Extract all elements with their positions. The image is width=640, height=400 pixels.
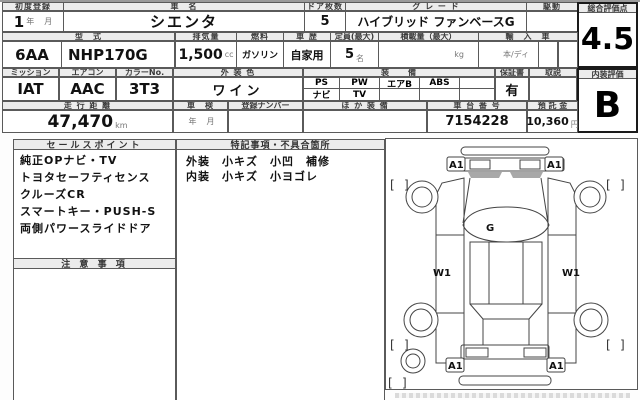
taillight-right xyxy=(524,348,546,357)
front-bumper xyxy=(461,147,549,155)
front-light-left-mark: A1 xyxy=(449,160,464,171)
model-header: 型 式 xyxy=(2,32,175,41)
car-name-cell: シエンタ xyxy=(63,11,305,32)
bracket: [ xyxy=(606,178,611,192)
cowl-left xyxy=(468,172,502,178)
first-reg-month-unit: 月 xyxy=(44,16,52,27)
grade-cell: ハイブリッド ファンベースG xyxy=(345,11,527,32)
reg-number-cell xyxy=(228,110,303,133)
other-equip-header: ほ か 装 備 xyxy=(303,101,427,110)
wheel-front-left xyxy=(406,181,438,213)
displacement-value: 1,500 xyxy=(178,47,222,63)
aircon-header: エアコン xyxy=(59,68,116,77)
manual-cell xyxy=(529,77,577,101)
capacity-header: 定員(最大) xyxy=(330,32,379,41)
first-reg-value: 1 xyxy=(14,13,24,31)
shaken-cell: 年 月 xyxy=(173,110,228,133)
grade-value: ハイブリッド ファンベースG xyxy=(357,13,514,30)
warranty-value: 有 xyxy=(505,80,518,99)
doors-header: ドア枚数 xyxy=(304,2,346,11)
bracket: ] xyxy=(404,338,409,352)
bracket: ] xyxy=(620,338,625,352)
doors-cell: 5 xyxy=(304,11,346,32)
fuel-value: ガソリン xyxy=(242,48,278,61)
caution-header: 注 意 事 項 xyxy=(13,258,176,269)
sales-point-item: クルーズCR xyxy=(14,186,174,203)
headlight-right xyxy=(520,160,540,169)
door-left-mark: W1 xyxy=(433,268,451,279)
history-cell: 自家用 xyxy=(283,41,331,68)
wheel-rear-left xyxy=(404,303,438,337)
equip-blank3 xyxy=(419,88,460,101)
bracket: [ xyxy=(390,178,395,192)
cowl-right xyxy=(510,172,543,178)
displacement-header: 排気量 xyxy=(175,32,237,41)
history-header: 車 歴 xyxy=(283,32,331,41)
spare-tire-rim xyxy=(406,354,420,368)
windshield xyxy=(463,207,549,242)
first-reg-cell: 1 年 月 xyxy=(2,11,64,32)
sales-point-item: 両側パワースライドドア xyxy=(14,220,174,237)
fuel-header: 燃料 xyxy=(236,32,284,41)
aircon-cell: AAC xyxy=(59,77,116,101)
reg-number-header: 登録ナンバー xyxy=(228,101,303,110)
bracket: [ xyxy=(388,376,393,389)
auction-sheet: 初度登録 車 名 ドア枚数 グ レ ー ド 駆動 1 年 月 シエンタ 5 ハイ… xyxy=(0,0,640,400)
rear-light-right-mark: A1 xyxy=(549,361,564,372)
c-pillar-left xyxy=(470,304,483,319)
color-value: ワイン xyxy=(212,80,263,99)
mileage-unit: km xyxy=(115,121,127,130)
shaken-month-unit: 月 xyxy=(207,116,215,127)
special-note-line: 内装 小キズ 小ヨゴレ xyxy=(178,169,382,184)
import-header: 輸 入 車 xyxy=(478,32,578,41)
history-value: 自家用 xyxy=(291,47,324,63)
model-code-cell: NHP170G xyxy=(61,41,175,68)
equip-tv: TV xyxy=(339,88,380,101)
deposit-value: 10,360 xyxy=(526,115,568,128)
load-header: 積載量（最大） xyxy=(378,32,479,41)
mileage-cell: 47,470 km xyxy=(2,110,173,133)
front-light-right-mark: A1 xyxy=(547,160,562,171)
colorno-cell: 3T3 xyxy=(116,77,173,101)
spare-tire xyxy=(401,349,425,373)
equip-blank2 xyxy=(379,88,420,101)
doors-value: 5 xyxy=(320,14,329,29)
equip-navi: ナビ xyxy=(303,88,340,101)
colorno-value: 3T3 xyxy=(129,80,160,98)
shaken-year-unit: 年 xyxy=(189,116,197,127)
tailgate xyxy=(483,319,529,345)
import-subcell-2 xyxy=(558,41,578,68)
equip-blank4 xyxy=(459,88,495,101)
warranty-cell: 有 xyxy=(495,77,529,101)
overall-score-header: 総合評価点 xyxy=(579,4,636,13)
load-unit: kg xyxy=(454,50,464,59)
import-subcell-1 xyxy=(538,41,558,68)
special-note-line: 外装 小キズ 小凹 補修 xyxy=(178,154,382,169)
sales-point-item: トヨタセーフティセンス xyxy=(14,169,174,186)
other-equip-cell xyxy=(303,110,427,133)
mileage-value: 47,470 xyxy=(47,112,113,132)
import-note: 本/ディ xyxy=(503,49,529,60)
drive-cell xyxy=(526,11,578,32)
model-prefix-cell: 6AA xyxy=(2,41,62,68)
a-pillar-right xyxy=(541,178,548,223)
mission-value: IAT xyxy=(17,80,43,98)
model-code-value: NHP170G xyxy=(68,46,148,64)
interior-score-value: B xyxy=(579,79,636,131)
chassis-cell: 7154228 xyxy=(427,110,527,133)
load-cell: kg xyxy=(378,41,479,68)
sales-points-list: 純正OPナビ・TV トヨタセーフティセンス クルーズCR スマートキー・PUSH… xyxy=(14,152,174,237)
overall-score-value: 4.5 xyxy=(579,13,636,66)
deposit-header: 預 託 金 xyxy=(527,101,578,110)
taillight-left xyxy=(466,348,488,357)
interior-score-header: 内装評価 xyxy=(579,70,636,79)
mileage-header: 走 行 距 離 xyxy=(2,101,173,110)
front-fender-left xyxy=(436,178,464,235)
bracket: ] xyxy=(404,178,409,192)
first-reg-header: 初度登録 xyxy=(2,2,64,11)
capacity-cell: 5 名 xyxy=(330,41,379,68)
chassis-value: 7154228 xyxy=(445,114,508,129)
displacement-unit: cc xyxy=(225,50,234,59)
roof-panel xyxy=(470,242,542,304)
rear-bumper xyxy=(459,376,551,385)
first-reg-year-unit: 年 xyxy=(26,16,34,27)
bracket: [ xyxy=(606,338,611,352)
car-name-value: シエンタ xyxy=(150,11,218,32)
chassis-header: 車 台 番 号 xyxy=(427,101,527,110)
manual-header: 取説 xyxy=(529,68,577,77)
aircon-value: AAC xyxy=(70,80,104,98)
sales-points-header: セールスポイント xyxy=(13,139,176,150)
model-prefix-value: 6AA xyxy=(15,46,49,64)
capacity-unit: 名 xyxy=(356,53,364,64)
legend-blur-strip xyxy=(395,393,630,398)
fuel-cell: ガソリン xyxy=(236,41,284,68)
shaken-header: 車 検 xyxy=(173,101,228,110)
sales-point-item: 純正OPナビ・TV xyxy=(14,152,174,169)
bracket: [ xyxy=(390,338,395,352)
drive-header: 駆動 xyxy=(526,2,578,11)
rear-light-left-mark: A1 xyxy=(448,361,463,372)
mission-cell: IAT xyxy=(2,77,59,101)
bracket: ] xyxy=(402,376,407,389)
colorno-header: カラーNo. xyxy=(116,68,173,77)
special-notes-header: 特記事項・不具合箇所 xyxy=(176,139,385,150)
color-cell: ワイン xyxy=(173,77,303,101)
mission-header: ミッション xyxy=(2,68,59,77)
front-fender-right xyxy=(548,178,576,235)
capacity-value: 5 xyxy=(345,47,354,62)
door-right-mark: W1 xyxy=(562,268,580,279)
grade-header: グ レ ー ド xyxy=(345,2,527,11)
special-notes-lines: 外装 小キズ 小凹 補修 内装 小キズ 小ヨゴレ xyxy=(178,154,382,184)
quarter-panel-right xyxy=(548,313,576,363)
deposit-unit: 円 xyxy=(571,119,579,130)
car-name-header: 車 名 xyxy=(63,2,305,11)
quarter-panel-left xyxy=(436,313,464,363)
wheel-front-right xyxy=(574,181,606,213)
color-header: 外 装 色 xyxy=(173,68,303,77)
windshield-glass-mark: G xyxy=(486,223,494,234)
sales-point-item: スマートキー・PUSH-S xyxy=(14,203,174,220)
bracket: ] xyxy=(620,178,625,192)
c-pillar-right xyxy=(529,304,542,319)
car-damage-diagram: A1 A1 G xyxy=(386,139,637,389)
headlight-left xyxy=(470,160,490,169)
damage-diagram-box: A1 A1 G xyxy=(385,138,638,390)
wheel-rear-right xyxy=(574,303,608,337)
deposit-cell: 10,360 円 xyxy=(527,110,578,133)
displacement-cell: 1,500 cc xyxy=(175,41,237,68)
warranty-header: 保証書 xyxy=(495,68,529,77)
